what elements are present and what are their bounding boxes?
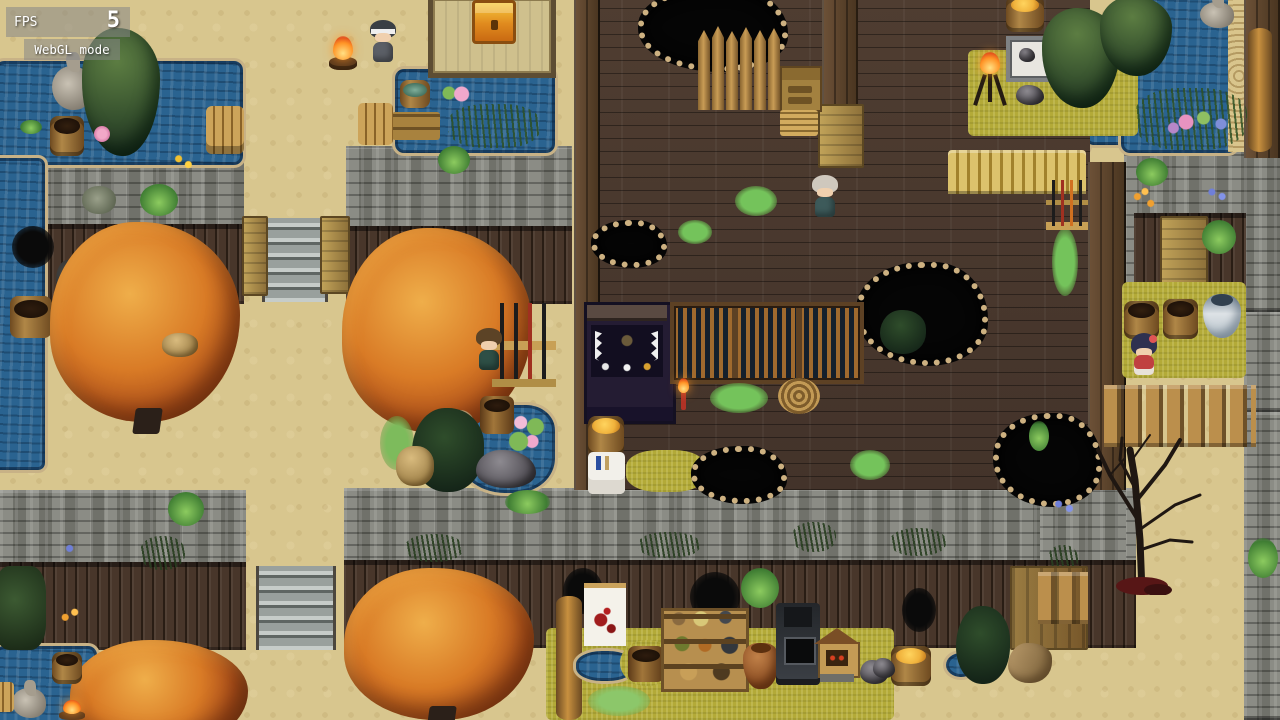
blue-flower-bush <box>1046 492 1082 522</box>
candle <box>674 378 692 412</box>
dark-bush <box>956 606 1010 684</box>
wood-bucket <box>628 646 664 682</box>
palm-plant <box>1202 220 1236 254</box>
water-tub <box>400 80 430 108</box>
heron-statue <box>1196 0 1238 30</box>
cabinet[interactable] <box>780 66 822 112</box>
campfire <box>328 36 358 70</box>
gate-door-right-top[interactable] <box>320 216 350 294</box>
gate-door-left[interactable] <box>242 216 268 296</box>
floor-pit-south <box>691 446 787 504</box>
rock <box>1016 85 1044 105</box>
fern <box>1136 158 1168 186</box>
torch-stand <box>974 52 1006 106</box>
slatted-windows <box>670 302 864 384</box>
barrel-amber <box>588 416 624 456</box>
rock <box>873 658 895 678</box>
moss-patch <box>678 220 712 244</box>
building-inner-door[interactable] <box>818 104 864 168</box>
fps-value: 5 <box>107 8 120 33</box>
fallen-log <box>1008 643 1052 683</box>
market-shelf[interactable] <box>661 608 749 692</box>
character-girl[interactable] <box>1129 333 1159 379</box>
grass-tuft <box>638 532 700 558</box>
mini-shrine[interactable] <box>818 628 856 682</box>
campfire <box>58 700 86 720</box>
lily-pads <box>506 412 548 454</box>
barrel-open <box>50 116 84 156</box>
moss-patch <box>850 450 890 480</box>
log-gate <box>358 103 393 145</box>
webgl-mode-label: WebGL mode <box>34 42 109 57</box>
stone-stairs-bottom <box>256 566 336 650</box>
lily-flower <box>442 84 470 104</box>
floor-pit-center <box>856 262 988 366</box>
futon-stack <box>588 452 625 494</box>
moss-streak <box>1052 228 1078 296</box>
gray-bush <box>82 186 116 214</box>
lotus-flower <box>94 126 110 142</box>
barrel-amber <box>891 646 931 686</box>
log-pillar-right <box>1248 28 1272 152</box>
edge-plant <box>1248 538 1278 578</box>
grass-tuft <box>140 536 185 570</box>
sand-rocks <box>396 446 434 486</box>
treasure-chest[interactable] <box>472 0 516 44</box>
character-old-man[interactable] <box>810 175 840 221</box>
grass-tuft <box>792 522 836 552</box>
stone-wall-bottom-left <box>0 490 246 570</box>
sand-rocks <box>162 333 198 357</box>
blood-banner[interactable] <box>584 583 626 646</box>
blue-flower-bush <box>1200 180 1234 210</box>
flower-cluster <box>1165 100 1235 140</box>
shrine-altar[interactable] <box>584 302 676 424</box>
grass-tuft <box>890 528 946 556</box>
webgl-mode-badge: WebGL mode <box>24 39 120 60</box>
palm-plant <box>168 492 204 526</box>
fence-hole <box>12 226 54 268</box>
fps-label: FPS <box>14 15 37 30</box>
stone-stairs-top <box>262 218 328 302</box>
character-ninja[interactable] <box>368 20 398 66</box>
yellow-flower-bush <box>166 146 202 178</box>
reeds <box>448 104 540 148</box>
barrel-open <box>1163 299 1198 339</box>
algae <box>20 120 42 134</box>
barrel-fire <box>1006 0 1044 32</box>
character-villager[interactable] <box>474 328 504 374</box>
grass-tuft <box>405 534 463 562</box>
plank-boards <box>392 112 440 140</box>
floor-pit-small-west <box>591 220 667 268</box>
fps-counter: FPS 5 <box>6 7 130 37</box>
autumn-tree <box>50 222 240 422</box>
moss-patch <box>735 186 777 216</box>
fence-hole <box>902 588 936 632</box>
moss-patch <box>710 383 768 413</box>
game-map-canvas[interactable]: FPS 5 WebGL mode <box>0 0 1280 720</box>
wood-tub <box>10 296 52 338</box>
autumn-tree-clipped <box>344 568 534 720</box>
log-pile <box>206 106 244 154</box>
orange-flower-bush <box>1126 183 1164 217</box>
flower-bush <box>50 602 88 636</box>
rope-coil <box>778 378 820 414</box>
palisade-stakes <box>698 26 786 110</box>
palm-on-fence <box>741 568 779 608</box>
heron-statue <box>10 680 50 720</box>
grass-patch <box>588 686 650 716</box>
ivy <box>0 566 46 650</box>
building-partition-wall <box>822 0 858 110</box>
plank-stack <box>780 110 818 136</box>
forge[interactable] <box>776 603 820 685</box>
palm-plant <box>140 184 178 216</box>
wall-plant <box>438 146 470 174</box>
barrel-open <box>52 652 82 684</box>
dead-tree <box>1080 420 1220 595</box>
weapon-rack-small[interactable] <box>1046 180 1088 230</box>
wood-posts <box>0 682 14 712</box>
wall-plant <box>505 490 550 514</box>
blue-flower-bush <box>56 534 90 566</box>
